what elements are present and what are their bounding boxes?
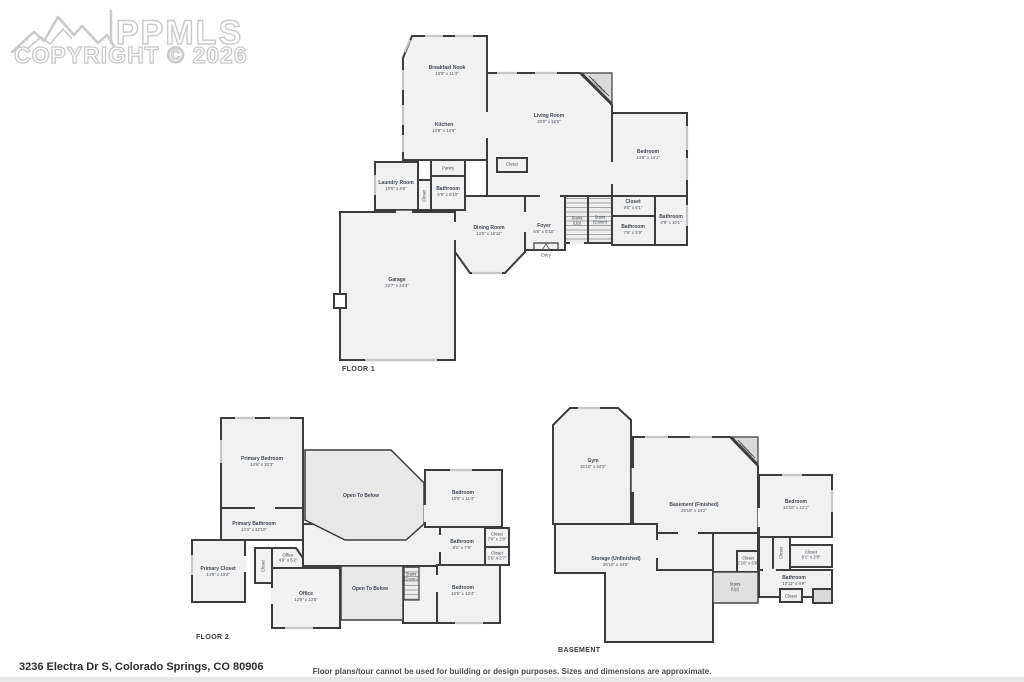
floor-2-plan: [192, 418, 509, 628]
basement-title: BASEMENT: [558, 647, 600, 654]
floor-plan-drawing: [0, 0, 1024, 682]
floor-2-title: FLOOR 2: [196, 634, 229, 641]
property-address: 3236 Electra Dr S, Colorado Springs, CO …: [19, 661, 264, 673]
floor-1-title: FLOOR 1: [342, 366, 375, 373]
floor-1-plan: [334, 36, 687, 360]
watermark-copyright: COPYRIGHT © 2026: [14, 42, 248, 69]
ppmls-watermark: PPMLS COPYRIGHT © 2026: [8, 4, 238, 74]
basement-plan: [553, 408, 832, 642]
floor-plan-page: PPMLS COPYRIGHT © 2026 Breakfast Nook10'…: [0, 0, 1024, 682]
page-bottom-edge: [0, 677, 1024, 682]
disclaimer-text: Floor plans/tour cannot be used for buil…: [313, 667, 712, 676]
